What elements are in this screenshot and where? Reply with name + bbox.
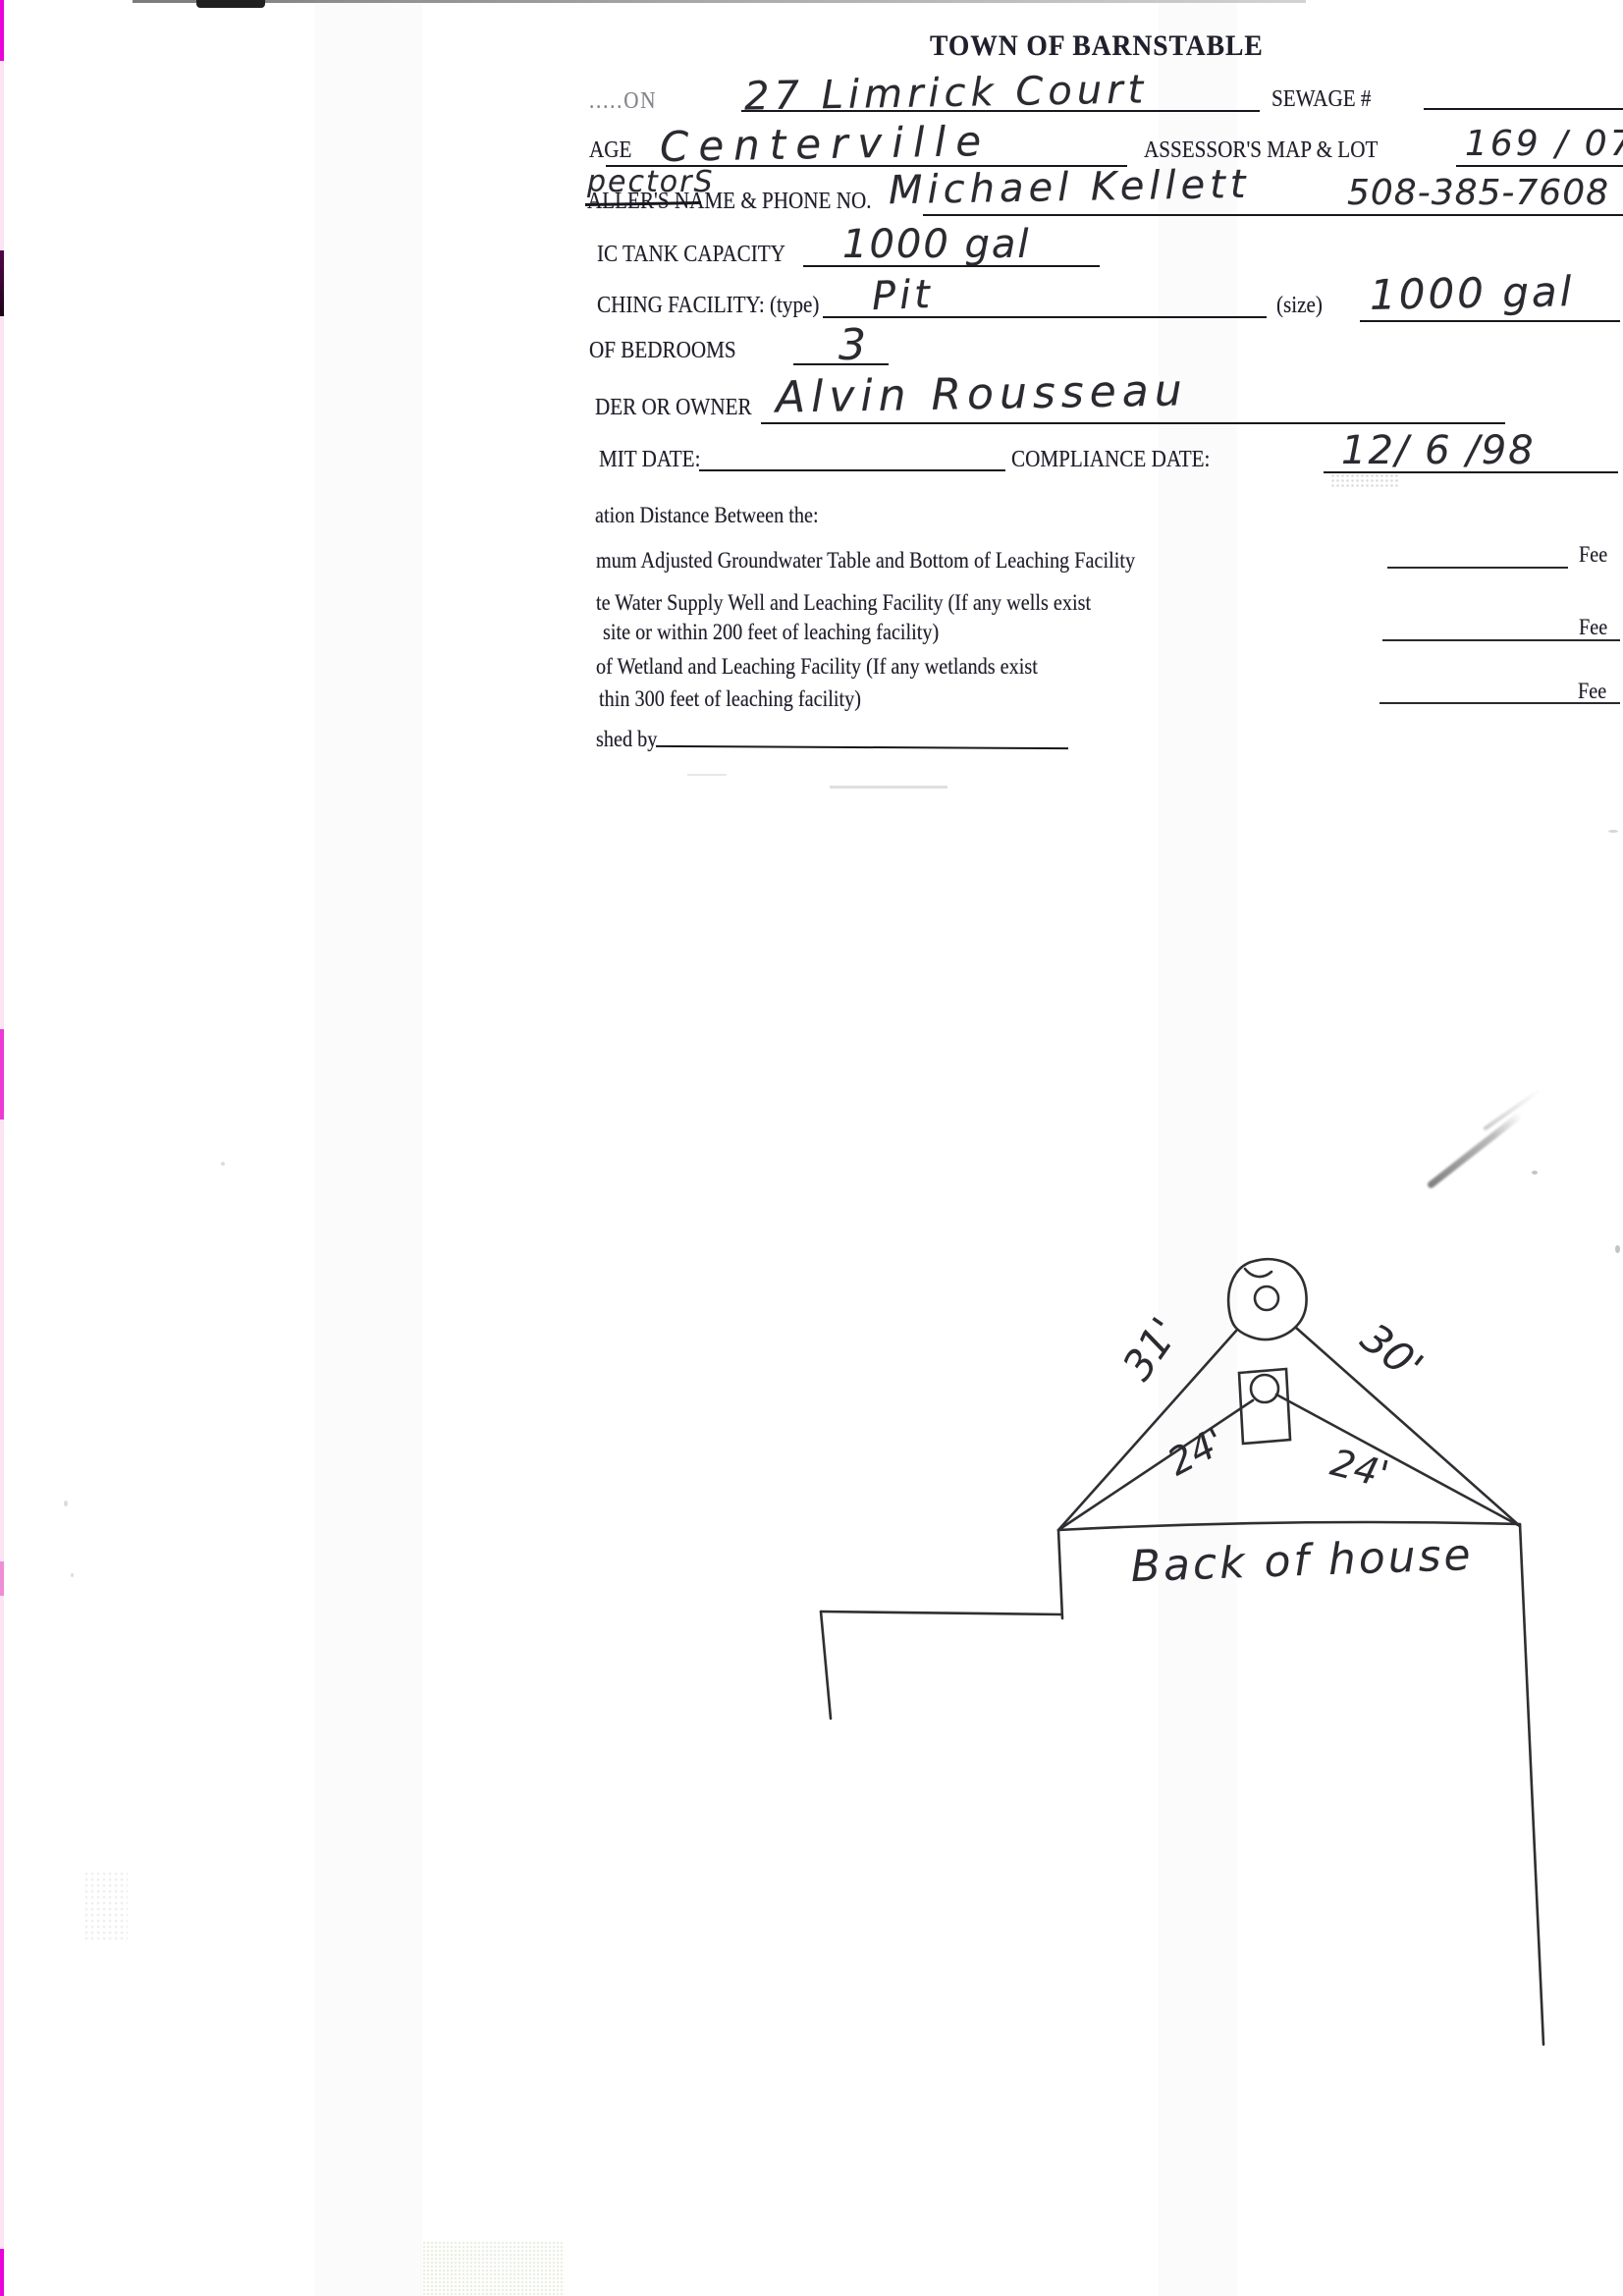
tank-capacity-label: IC TANK CAPACITY [597, 242, 785, 268]
separation-row1-text: mum Adjusted Groundwater Table and Botto… [596, 548, 1135, 574]
location-label: .....ON [589, 88, 657, 115]
house-step-line [821, 1612, 1061, 1614]
distance-label-left-tank: 24' [1161, 1419, 1232, 1484]
leaching-type-underline [823, 316, 1267, 318]
assessors-label: ASSESSOR'S MAP & LOT [1144, 137, 1378, 164]
separation-row2-text2: site or within 200 feet of leaching faci… [603, 620, 939, 645]
house-left-wall [1058, 1530, 1062, 1618]
distance-label-left-pit: 31' [1113, 1309, 1189, 1389]
site-sketch: 31' 30' 24' 24' Back of house [785, 1257, 1591, 2062]
sewage-label: SEWAGE # [1271, 86, 1371, 113]
distance-line-right-tank [1276, 1394, 1520, 1526]
assessors-value: 169 / 078 [1465, 124, 1623, 164]
house-top-line [1058, 1522, 1520, 1530]
sewage-underline [1424, 108, 1623, 110]
scan-speck [64, 1501, 68, 1506]
leaching-pit-notch [1245, 1269, 1271, 1277]
septic-tank-center [1251, 1375, 1278, 1402]
tank-capacity-value: 1000 gal [842, 222, 1031, 267]
owner-label: DER OR OWNER [595, 395, 752, 421]
scan-edge-segment [0, 2249, 4, 2296]
assessors-underline [1456, 165, 1623, 167]
separation-row1-underline [1387, 567, 1568, 569]
house-caption: Back of house [1130, 1530, 1474, 1592]
tank-capacity-underline [803, 265, 1100, 267]
separation-footer: shed by [596, 727, 657, 752]
scan-edge-segment [0, 1029, 4, 1120]
compliance-date-value: 12/ 6 /98 [1341, 428, 1536, 473]
scan-speck [221, 1162, 225, 1166]
installer-underline [923, 214, 1623, 216]
scan-speck [1532, 1171, 1538, 1175]
separation-row2-unit: Fee [1579, 615, 1607, 640]
bedrooms-underline [793, 363, 889, 365]
scan-speck [1615, 1245, 1620, 1253]
distance-label-right-pit: 30' [1352, 1314, 1432, 1392]
septic-tank-outline [1239, 1369, 1290, 1444]
scanned-form-page: TOWN OF BARNSTABLE .....ON 27 Limrick Co… [0, 0, 1623, 2296]
scan-top-edge-blotch [196, 0, 265, 8]
village-value: Centerville [660, 117, 992, 171]
scan-edge-segment [0, 250, 4, 316]
leaching-pit-outline [1228, 1259, 1306, 1339]
scan-noise-patch [422, 2241, 565, 2296]
scan-streak [314, 0, 422, 2296]
separation-footer-underline [656, 745, 1068, 749]
separation-row3-text: of Wetland and Leaching Facility (If any… [596, 654, 1038, 680]
bedrooms-label: OF BEDROOMS [589, 338, 736, 364]
separation-heading: ation Distance Between the: [595, 503, 819, 528]
leaching-pit-center [1255, 1286, 1278, 1310]
scan-faint-dash [687, 774, 727, 776]
scan-faint-dash [830, 786, 947, 789]
scan-speck [71, 1573, 74, 1577]
owner-underline [761, 422, 1505, 424]
distance-label-right-tank: 24' [1326, 1441, 1393, 1497]
house-right-wall [1520, 1524, 1543, 2045]
leaching-size-value: 1000 gal [1370, 267, 1575, 319]
scan-smudge [83, 1871, 128, 1940]
permit-date-label: MIT DATE: [599, 447, 700, 473]
leaching-type-label: CHING FACILITY: (type) [597, 293, 819, 319]
separation-row3-text2: thin 300 feet of leaching facility) [599, 686, 861, 712]
location-underline [741, 110, 1260, 112]
leaching-size-underline [1360, 320, 1620, 322]
scan-edge-strip [0, 0, 4, 2296]
separation-row3-unit: Fee [1578, 679, 1606, 704]
scan-edge-segment [0, 1561, 4, 1596]
scan-top-edge-line [133, 0, 1306, 3]
installer-phone-value: 508-385-7608 [1347, 173, 1609, 213]
separation-row2-text: te Water Supply Well and Leaching Facili… [596, 590, 1091, 616]
separation-row1-unit: Fee [1579, 542, 1607, 568]
leaching-size-label: (size) [1276, 293, 1323, 319]
owner-value: Alvin Rousseau [776, 365, 1188, 422]
compliance-date-label: COMPLIANCE DATE: [1011, 447, 1210, 473]
house-step-wall [821, 1612, 831, 1719]
scan-smudge [1330, 473, 1399, 489]
village-label: AGE [589, 137, 631, 164]
leaching-type-value: Pit [871, 272, 934, 319]
page-title: TOWN OF BARNSTABLE [930, 29, 1264, 63]
scan-speck [1608, 830, 1618, 833]
sketch-lines [821, 1259, 1543, 2045]
scan-edge-segment [0, 0, 4, 61]
pencil-smudge [1427, 1112, 1524, 1189]
permit-date-underline [699, 469, 1005, 471]
installer-name-value: Michael Kellett [889, 162, 1251, 213]
